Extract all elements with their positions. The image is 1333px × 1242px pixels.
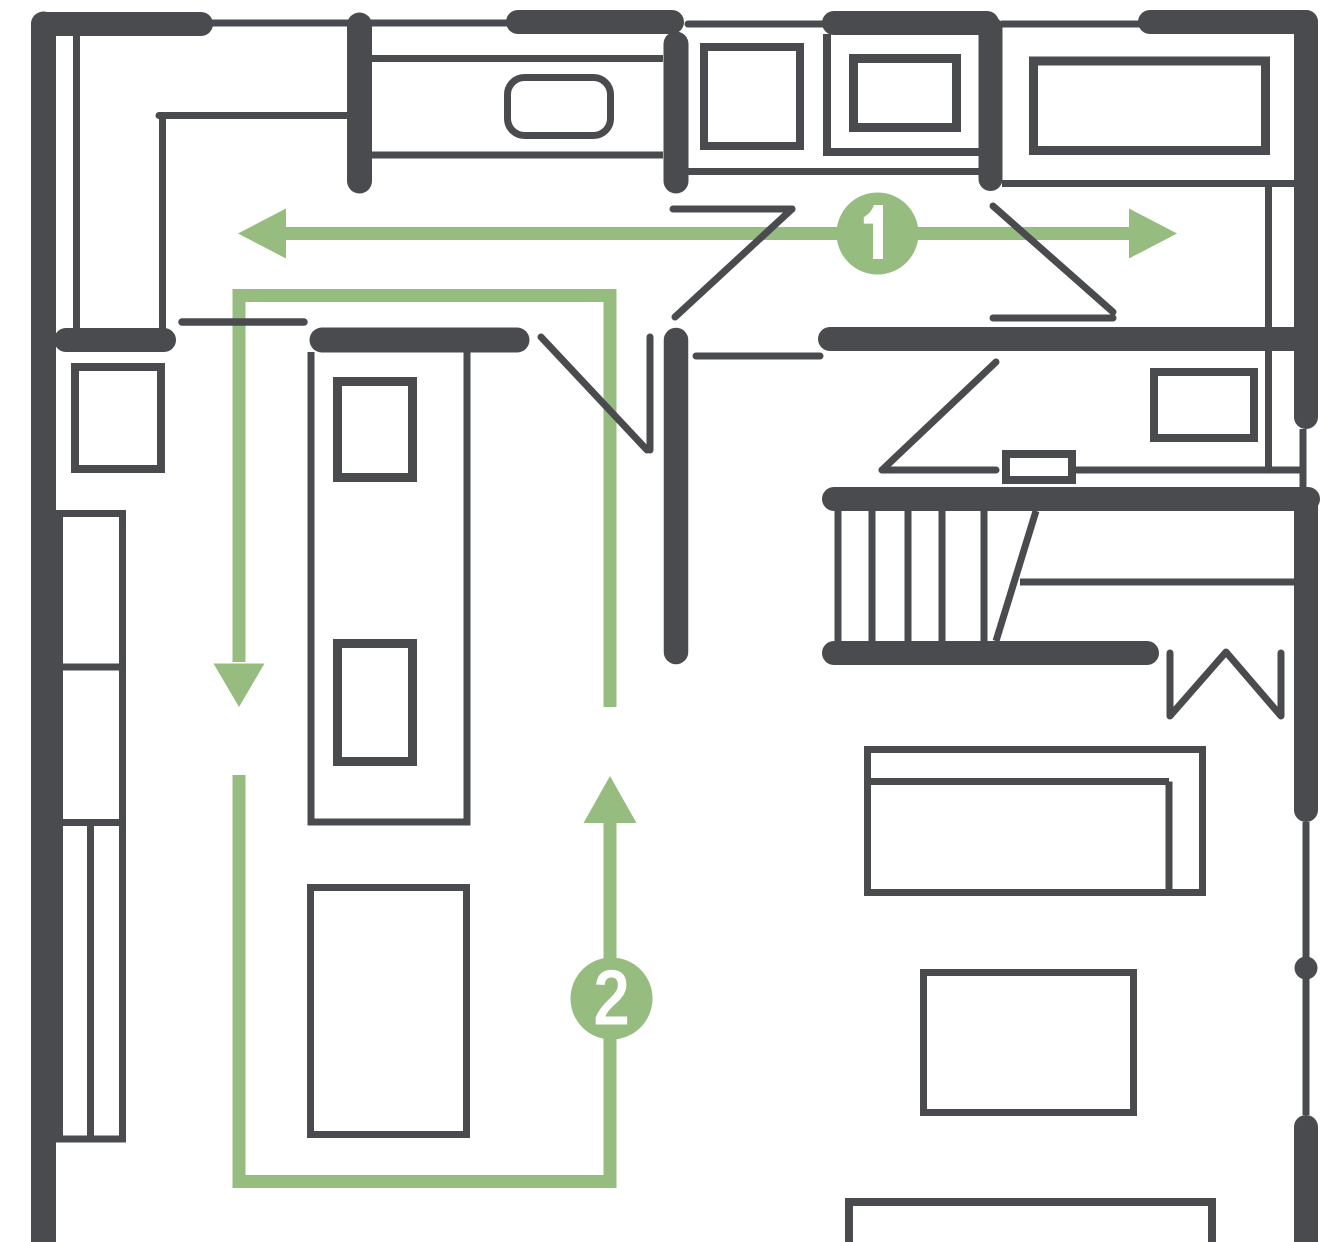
- svg-text:2: 2: [593, 952, 630, 1042]
